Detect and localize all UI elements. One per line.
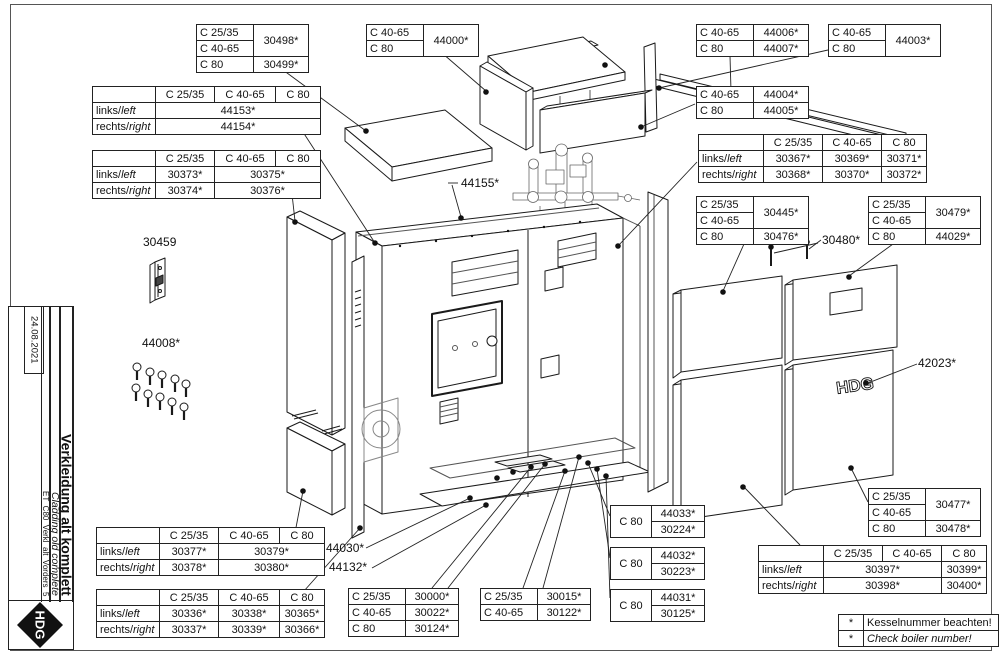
part-label-44030: 44030* bbox=[326, 541, 364, 555]
parts-table-30397: C 25/35C 40-65C 80links/left30397*30399*… bbox=[758, 545, 987, 594]
parts-table-44153: C 25/35C 40-65C 80links/left44153*rechts… bbox=[92, 86, 321, 135]
top-cover-slab bbox=[345, 110, 492, 181]
parts-table-30445: C 25/3530445*C 40-65C 8030476* bbox=[696, 196, 809, 245]
parts-table-30367: C 25/35C 40-65C 80links/left30367*30369*… bbox=[698, 134, 927, 183]
part-label-42023: 42023* bbox=[918, 356, 956, 370]
parts-table-44006: C 40-6544006*C 8044007* bbox=[696, 24, 809, 57]
parts-table-30377: C 25/35C 40-65C 80links/left30377*30379*… bbox=[96, 527, 325, 576]
hdg-logo-cell: HDG bbox=[9, 600, 73, 649]
hdg-logo-text: HDG bbox=[33, 611, 48, 640]
footnote-table: *Kesselnummer beachten!*Check boiler num… bbox=[838, 614, 999, 647]
title-german-column: Verkleidung alt komplett bbox=[60, 306, 73, 602]
left-side-panels bbox=[287, 211, 345, 515]
part-label-44155: 44155* bbox=[461, 176, 499, 190]
part-label-44132: 44132* bbox=[329, 560, 367, 574]
parts-table-30498: C 25/3530498*C 40-65C 8030499* bbox=[196, 24, 309, 73]
parts-table-44031: C 8044031*30125* bbox=[610, 589, 705, 622]
bracket-30459 bbox=[150, 258, 165, 303]
right-cladding-panels: HDG bbox=[673, 265, 897, 525]
parts-table-30477: C 25/3530477*C 40-65C 8030478* bbox=[868, 488, 981, 537]
parts-table-30373: C 25/35C 40-65C 80links/left30373*30375*… bbox=[92, 150, 321, 199]
part-label-30459: 30459 bbox=[143, 235, 176, 249]
parts-table-44000: C 40-6544000*C 80 bbox=[366, 24, 479, 57]
parts-table-30000: C 25/3530000*C 40-6530022*C 8030124* bbox=[348, 588, 459, 637]
parts-table-44033: C 8044033*30224* bbox=[610, 505, 705, 538]
top-assembly bbox=[480, 37, 657, 153]
parts-table-44004: C 40-6544004*C 8044005* bbox=[696, 86, 809, 119]
part-label-30480: 30480* bbox=[822, 233, 860, 247]
screws-44008 bbox=[132, 363, 190, 420]
part-label-44008: 44008* bbox=[142, 336, 180, 350]
parts-diagram-sheet: HDG bbox=[0, 0, 1000, 656]
title-block: 24.08.2021 ET_C80_Verkl_alt_Vorders_5 Cl… bbox=[8, 306, 74, 650]
parts-table-44003: C 40-6544003*C 80 bbox=[828, 24, 941, 57]
parts-table-30479: C 25/3530479*C 40-65C 8044029* bbox=[868, 196, 981, 245]
right-frame-column bbox=[648, 192, 668, 492]
parts-table-30015: C 25/3530015*C 40-6530122* bbox=[480, 588, 591, 621]
parts-table-30336: C 25/35C 40-65C 80links/left30336*30338*… bbox=[96, 589, 325, 638]
parts-table-44032: C 8044032*30223* bbox=[610, 547, 705, 580]
hdg-logo: HDG bbox=[9, 601, 71, 649]
title-german: Verkleidung alt komplett bbox=[59, 434, 75, 596]
